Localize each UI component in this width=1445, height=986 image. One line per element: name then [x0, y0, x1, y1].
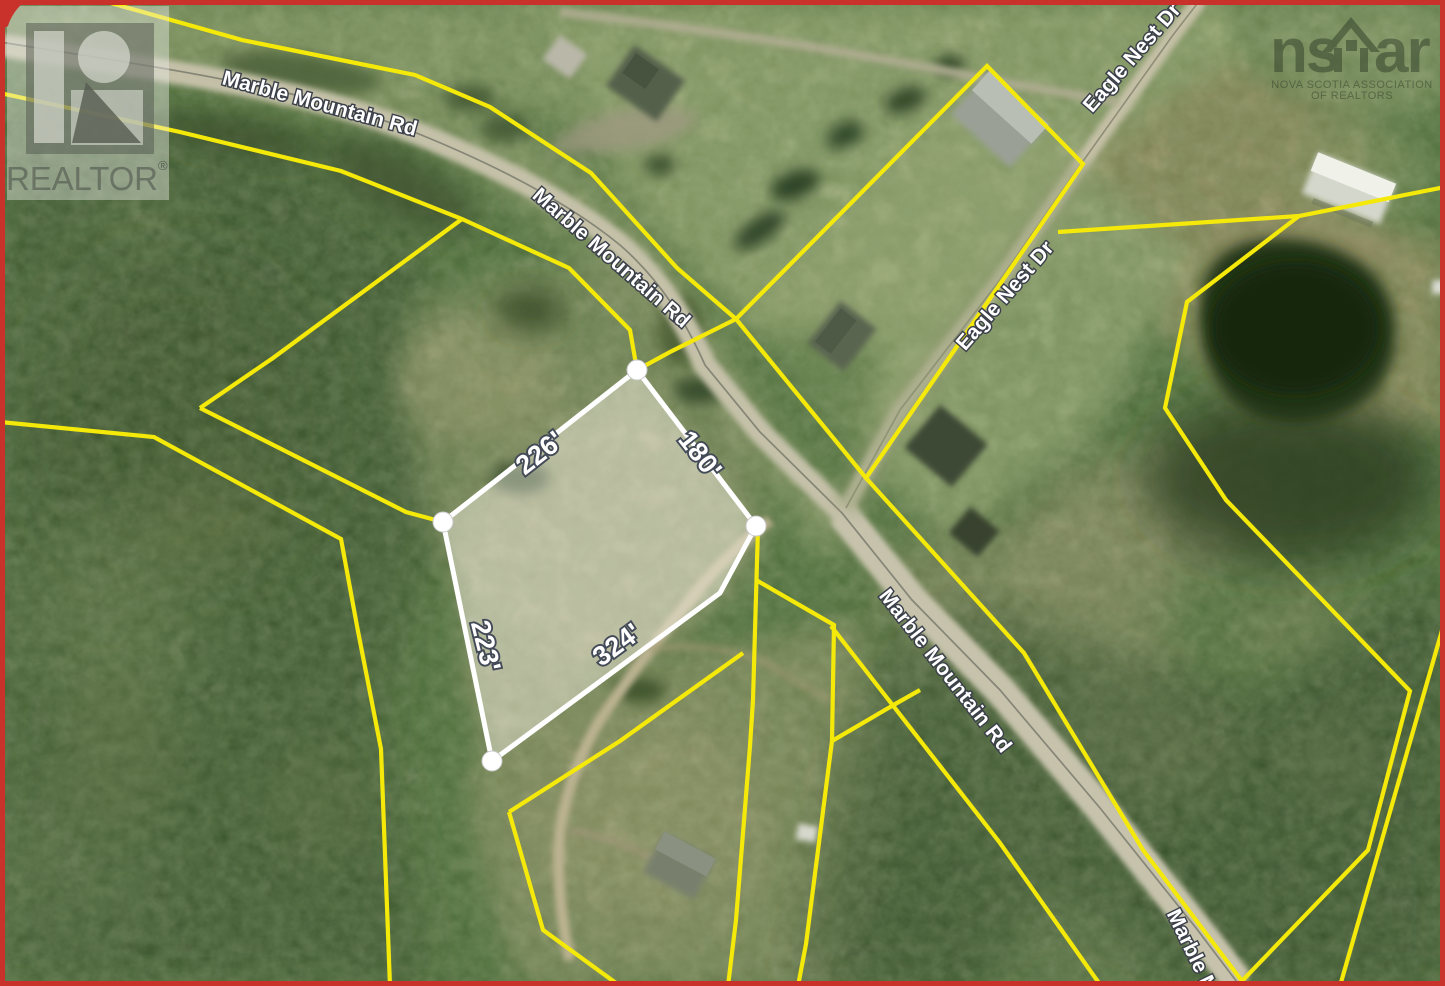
svg-text:®: ®: [158, 158, 168, 173]
svg-text:REALTOR: REALTOR: [6, 160, 158, 197]
svg-text:OF REALTORS: OF REALTORS: [1311, 90, 1393, 102]
svg-text:ar: ar: [1374, 17, 1430, 86]
